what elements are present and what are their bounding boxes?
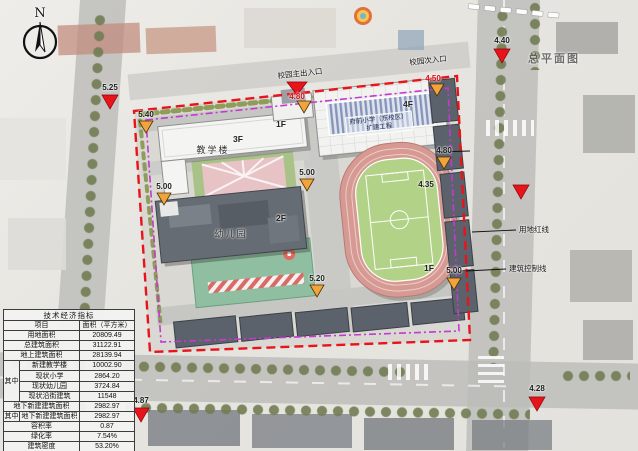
- table-row: 其中 地下新建建筑面积 2982.97: [4, 411, 135, 421]
- row-value: 28139.94: [80, 351, 135, 361]
- table-row: 绿化率 7.54%: [4, 432, 135, 442]
- row-label: 现状幼儿园: [20, 381, 80, 391]
- secondary-entrance-elevation: 4.50: [425, 74, 441, 83]
- row-value: 3724.84: [80, 381, 135, 391]
- row-label: 现状小学: [20, 371, 80, 381]
- drawing-title-watermark: 总平面图: [528, 50, 580, 66]
- table-row: 地下新建建筑面积 2982.97: [4, 401, 135, 411]
- table-row: 地上建筑面积 28139.94: [4, 351, 135, 361]
- row-label: 新建教学楼: [20, 361, 80, 371]
- teaching-building-label: 教学楼: [196, 143, 229, 156]
- table-row: 现状幼儿园 3724.84: [4, 381, 135, 391]
- indicator-table: 技术经济指标 项目 面积（平方米） 用地面积 20809.49 总建筑面积 31…: [3, 309, 135, 451]
- row-value: 2982.97: [80, 411, 135, 421]
- table-row: 总建筑面积 31122.91: [4, 341, 135, 351]
- site-elevation-west: 5.00: [156, 182, 172, 191]
- row-label: 容积率: [4, 421, 80, 431]
- teaching-floor-label: 3F: [233, 134, 243, 144]
- streetfront-floor-label: 1F: [424, 263, 434, 273]
- site-elevation-south: 5.20: [309, 274, 325, 283]
- site-elevation-center: 5.00: [299, 168, 315, 177]
- road-elevation-bottom-left: 4.87: [133, 396, 149, 405]
- red-line-label: 用地红线: [519, 224, 549, 235]
- row-value: 7.54%: [80, 432, 135, 442]
- table-row: 用地面积 20809.49: [4, 331, 135, 341]
- photo-playground-circle: [354, 7, 372, 25]
- site-elevation-track: 4.35: [418, 180, 434, 189]
- row-label: 地下新建建筑面积: [4, 401, 80, 411]
- main-floor-label: 4F: [403, 99, 413, 109]
- road-elevation-left: 5.25: [102, 83, 118, 92]
- site-elevation-nw: 5.40: [138, 110, 154, 119]
- table-row: 现状小学 2864.20: [4, 371, 135, 381]
- row-label: 绿化率: [4, 432, 80, 442]
- road-elevation-bottom-right: 4.28: [529, 384, 545, 393]
- site-elevation-east-upper: 4.80: [436, 146, 452, 155]
- col-header-area: 面积（平方米）: [80, 321, 135, 331]
- row-value: 2982.97: [80, 401, 135, 411]
- row-value: 10002.90: [80, 361, 135, 371]
- north-label: N: [34, 6, 45, 21]
- row-value: 53.20%: [80, 442, 135, 451]
- site-elevation-east-lower: 5.00: [446, 266, 462, 275]
- row-label: 现状沿街建筑: [20, 391, 80, 401]
- control-line-label: 建筑控制线: [509, 263, 547, 274]
- col-header-item: 项目: [4, 321, 80, 331]
- link-floor-label: 1F: [276, 119, 286, 129]
- row-value: 20809.49: [80, 331, 135, 341]
- table-row: 建筑密度 53.20%: [4, 442, 135, 451]
- parked-cars: [468, 4, 559, 18]
- row-label: 用地面积: [4, 331, 80, 341]
- row-value: 0.87: [80, 421, 135, 431]
- among-label: 其中: [4, 361, 20, 401]
- kindergarten-label: 幼儿园: [214, 227, 247, 240]
- row-label: 总建筑面积: [4, 341, 80, 351]
- main-entrance-elevation: 4.80: [289, 92, 305, 101]
- kindergarten-floor-label: 2F: [276, 213, 286, 223]
- table-title: 技术经济指标: [4, 310, 135, 321]
- north-arrow-icon: [24, 22, 56, 58]
- row-label: 地下新建建筑面积: [20, 411, 80, 421]
- site-plan-page: N 总平面图 校园主出入口 4.80 校园次入口 4.50 5.25 4.40 …: [0, 0, 638, 451]
- road-elevation-top-right: 4.40: [494, 36, 510, 45]
- among-label: 其中: [4, 411, 20, 421]
- row-value: 11548: [80, 391, 135, 401]
- row-label: 地上建筑面积: [4, 351, 80, 361]
- table-row: 容积率 0.87: [4, 421, 135, 431]
- row-value: 31122.91: [80, 341, 135, 351]
- table-row: 现状沿街建筑 11548: [4, 391, 135, 401]
- table-row: 其中 新建教学楼 10002.90: [4, 361, 135, 371]
- row-label: 建筑密度: [4, 442, 80, 451]
- row-value: 2864.20: [80, 371, 135, 381]
